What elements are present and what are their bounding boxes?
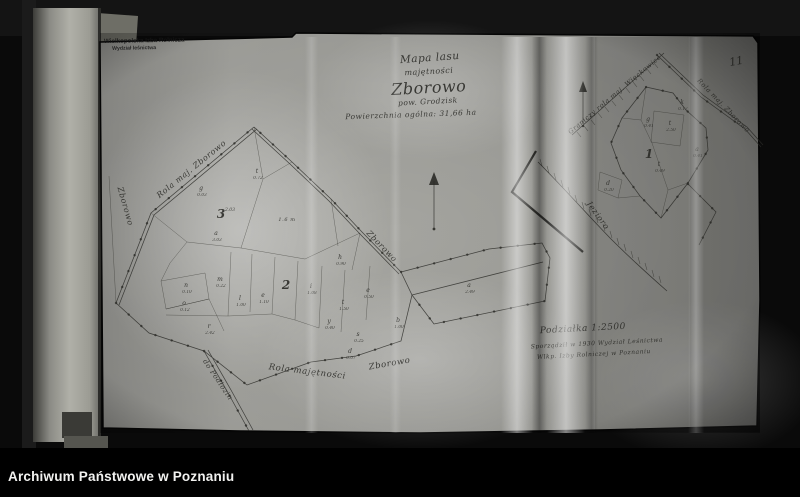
archive-caption: Archiwum Państwowe w Poznaniu bbox=[8, 469, 234, 484]
photo-vignette bbox=[100, 33, 760, 433]
caption-bar: Archiwum Państwowe w Poznaniu bbox=[0, 448, 800, 497]
folded-page-bottom-tab bbox=[62, 412, 92, 438]
archive-photo: Wielkopolska Izba Rolnicza Wydział leśni… bbox=[0, 0, 800, 497]
photo-canvas: Wielkopolska Izba Rolnicza Wydział leśni… bbox=[0, 0, 800, 497]
